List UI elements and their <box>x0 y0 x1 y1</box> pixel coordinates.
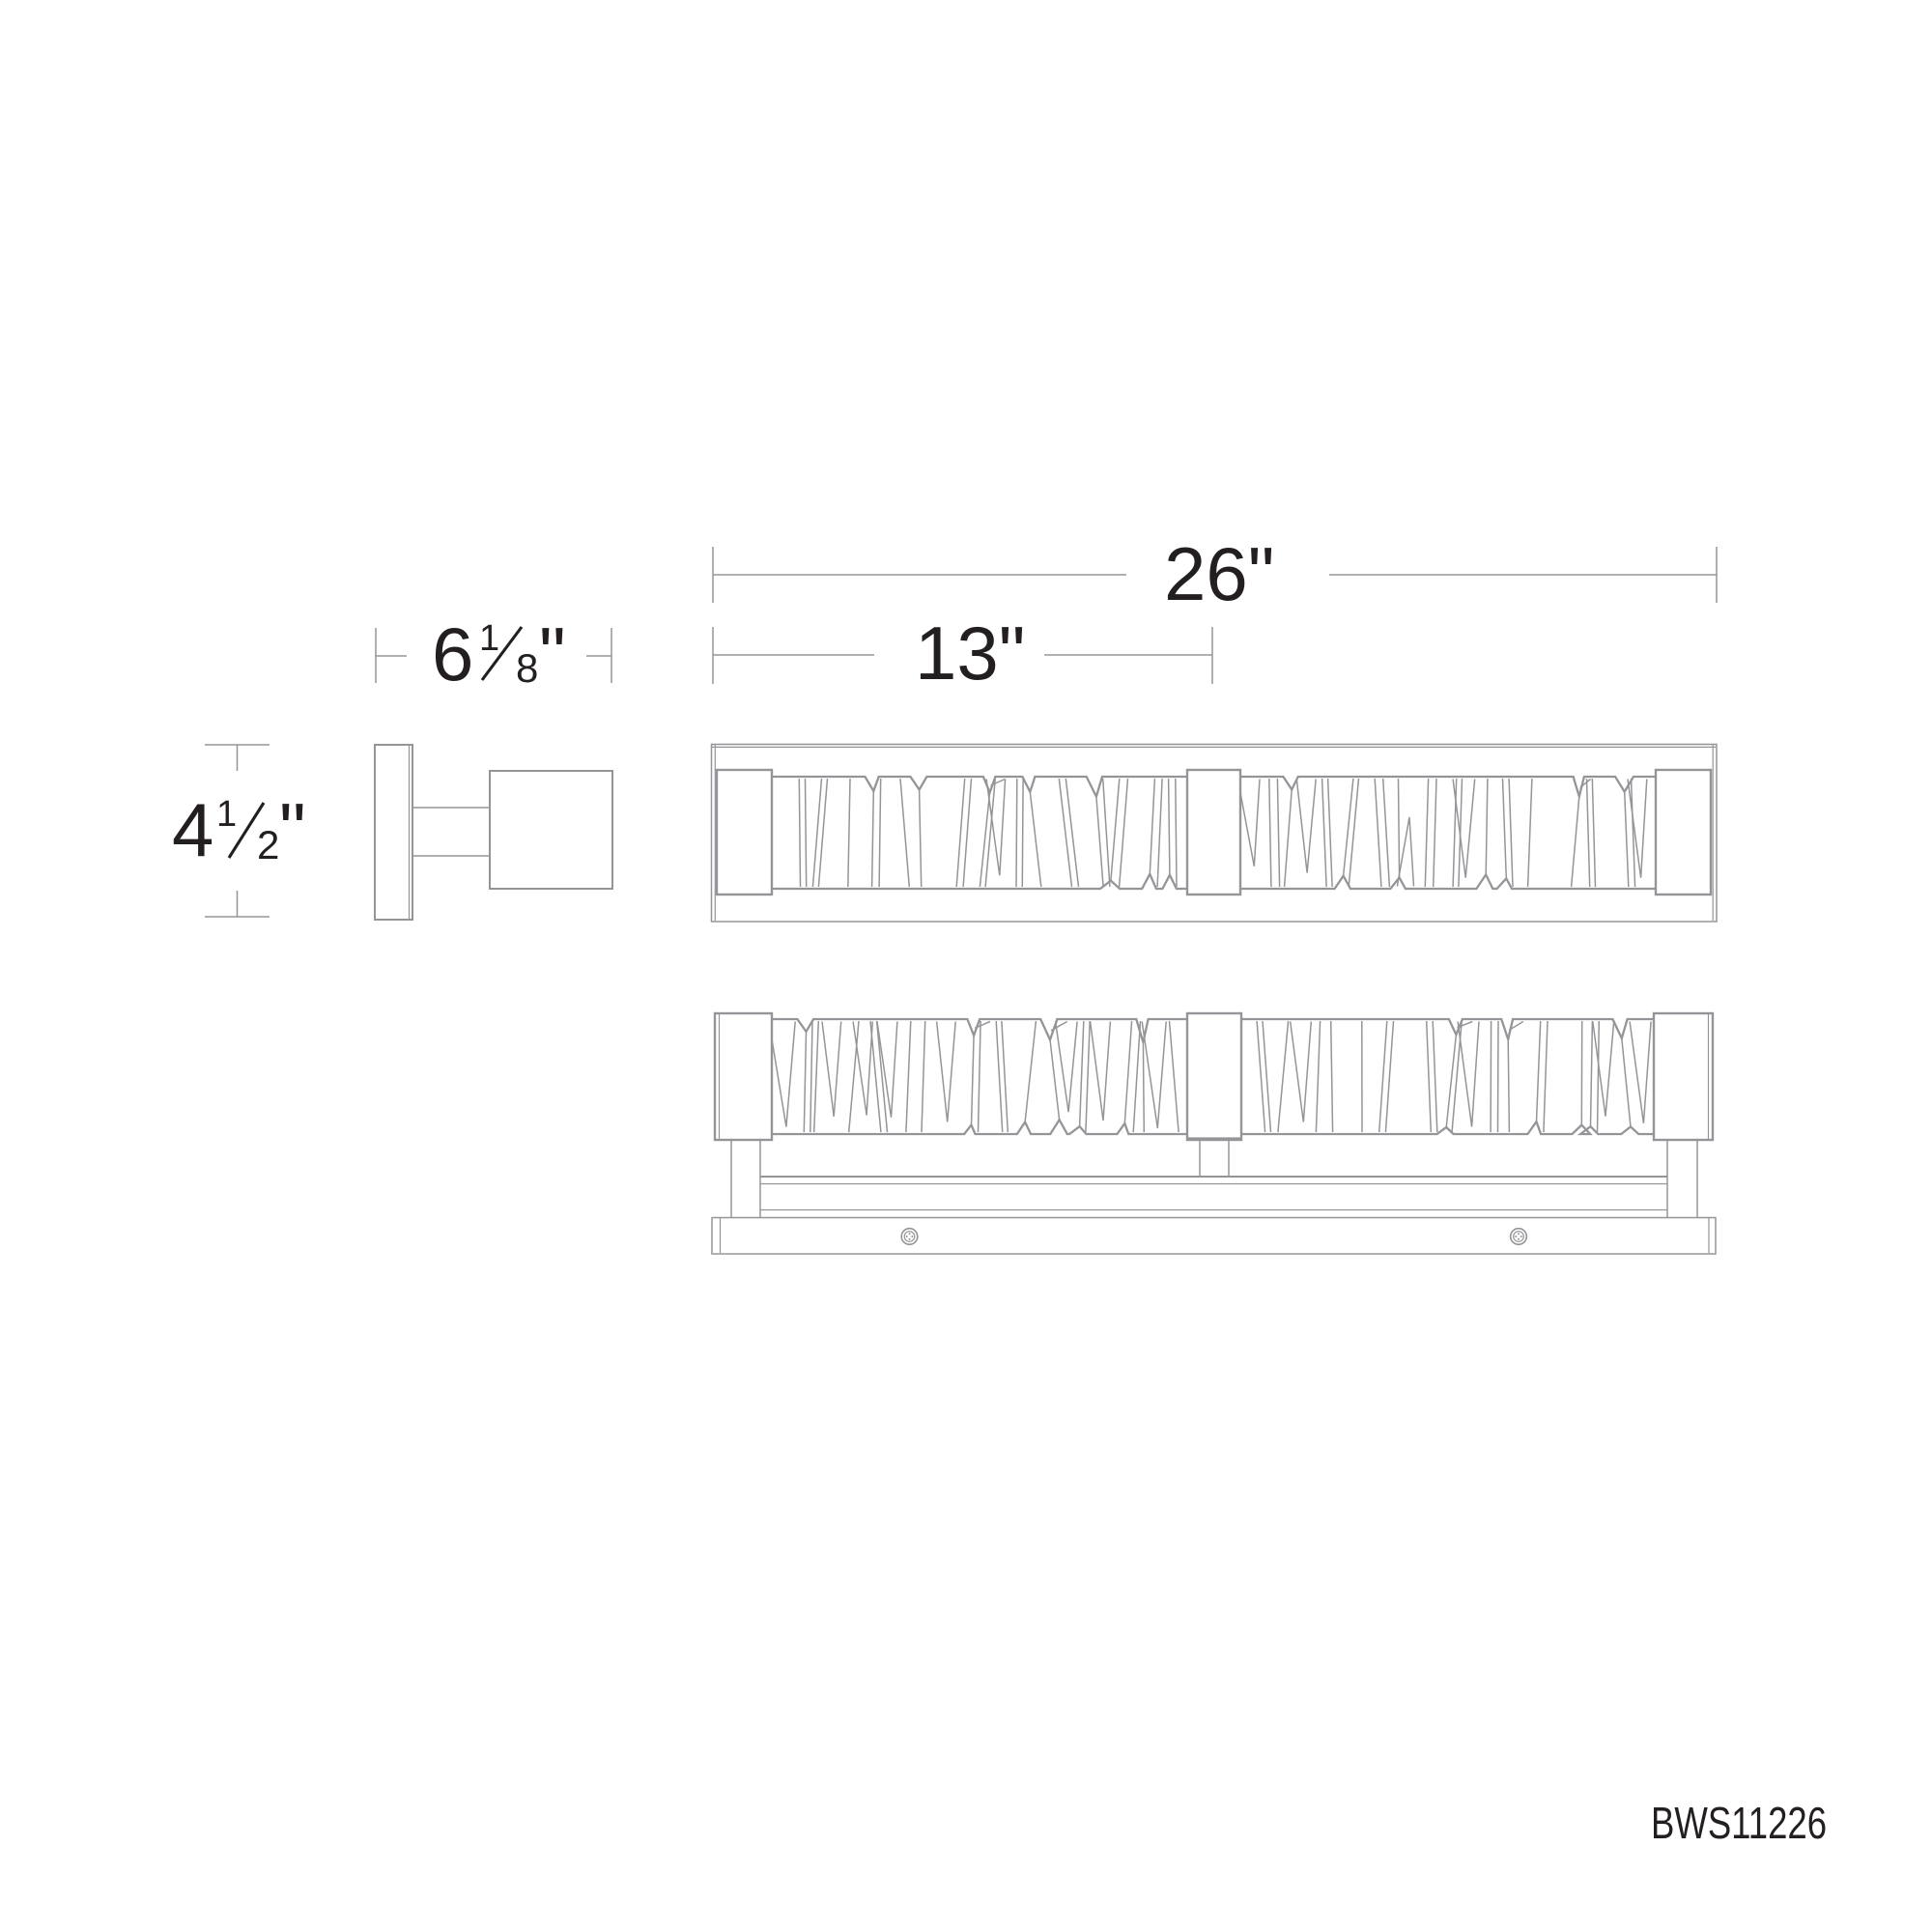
svg-text:8: 8 <box>516 645 538 691</box>
svg-text:2: 2 <box>257 822 279 867</box>
svg-text:6: 6 <box>432 611 473 696</box>
svg-text:1: 1 <box>479 618 499 659</box>
svg-text:": " <box>279 787 306 872</box>
svg-text:": " <box>539 611 566 696</box>
svg-text:1: 1 <box>216 794 237 835</box>
svg-text:BWS11226: BWS11226 <box>1651 1798 1827 1848</box>
svg-text:13": 13" <box>915 611 1025 696</box>
svg-text:26": 26" <box>1164 531 1274 616</box>
svg-text:4: 4 <box>172 787 213 872</box>
